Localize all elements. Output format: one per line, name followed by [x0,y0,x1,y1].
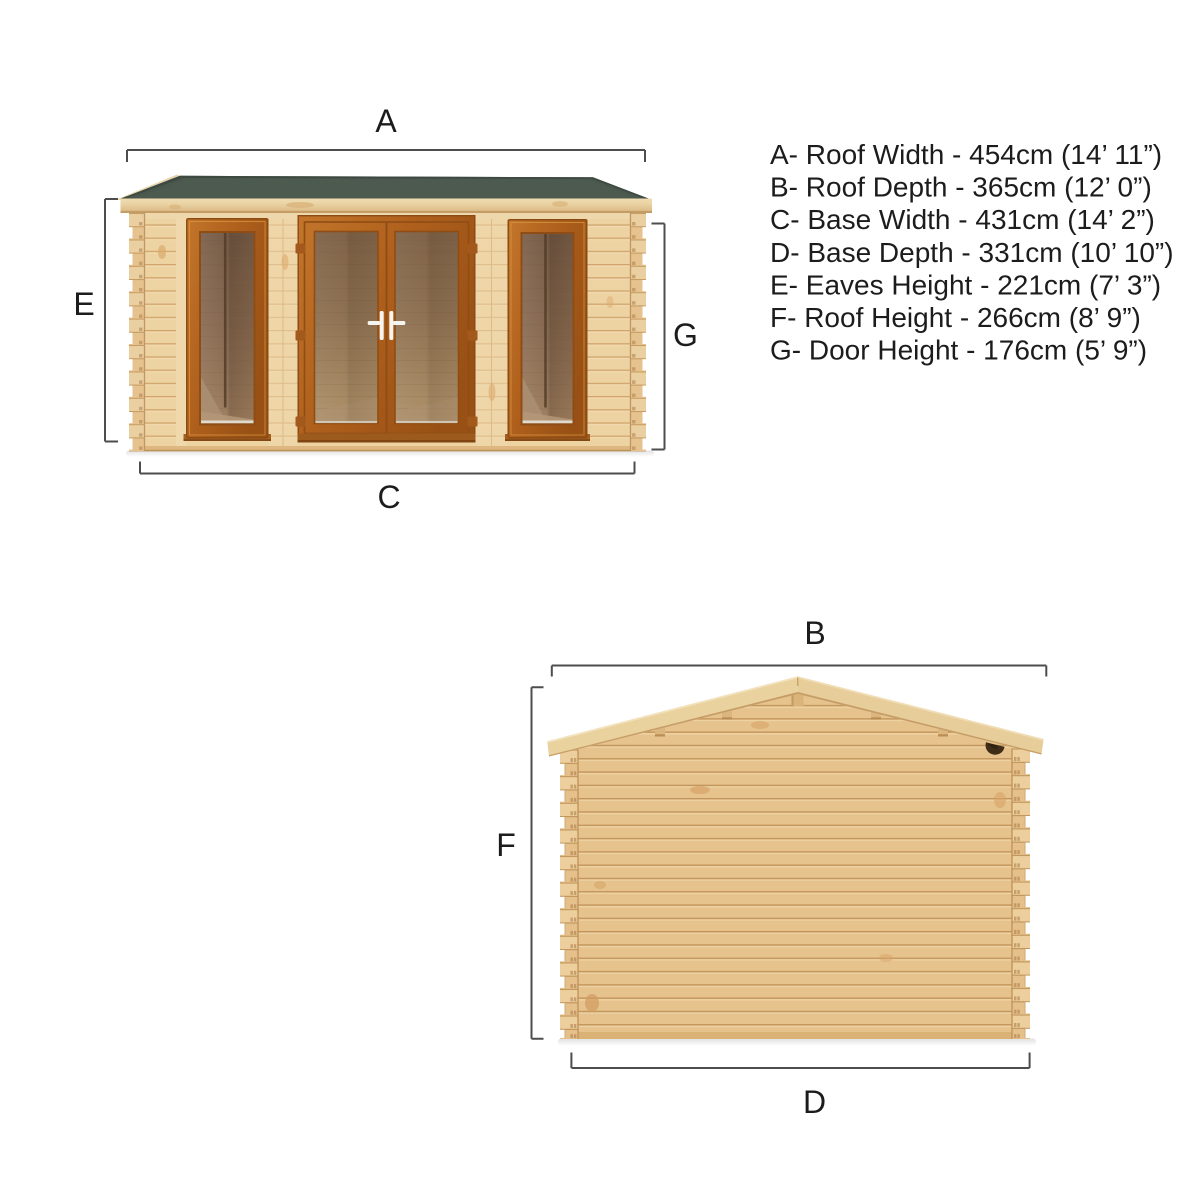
svg-text:D- Base Depth - 331cm (10’ 10”: D- Base Depth - 331cm (10’ 10”) [770,237,1174,268]
svg-text:G- Door Height - 176cm (5’ 9”): G- Door Height - 176cm (5’ 9”) [770,335,1147,366]
svg-text:E- Eaves Height - 221cm (7’ 3”: E- Eaves Height - 221cm (7’ 3”) [770,269,1161,300]
svg-text:G: G [673,317,698,353]
svg-text:C: C [377,479,400,515]
svg-text:C- Base Width - 431cm (14’ 2”): C- Base Width - 431cm (14’ 2”) [770,204,1155,235]
svg-text:B: B [804,615,825,651]
svg-text:F- Roof Height - 266cm (8’ 9”): F- Roof Height - 266cm (8’ 9”) [770,302,1141,333]
svg-text:F: F [496,827,516,863]
svg-text:A: A [375,103,397,139]
svg-text:D: D [803,1084,826,1120]
svg-text:B- Roof Depth - 365cm (12’ 0”): B- Roof Depth - 365cm (12’ 0”) [770,172,1152,203]
svg-text:E: E [73,286,94,322]
svg-text:A- Roof Width - 454cm (14’ 11”: A- Roof Width - 454cm (14’ 11”) [770,139,1162,170]
